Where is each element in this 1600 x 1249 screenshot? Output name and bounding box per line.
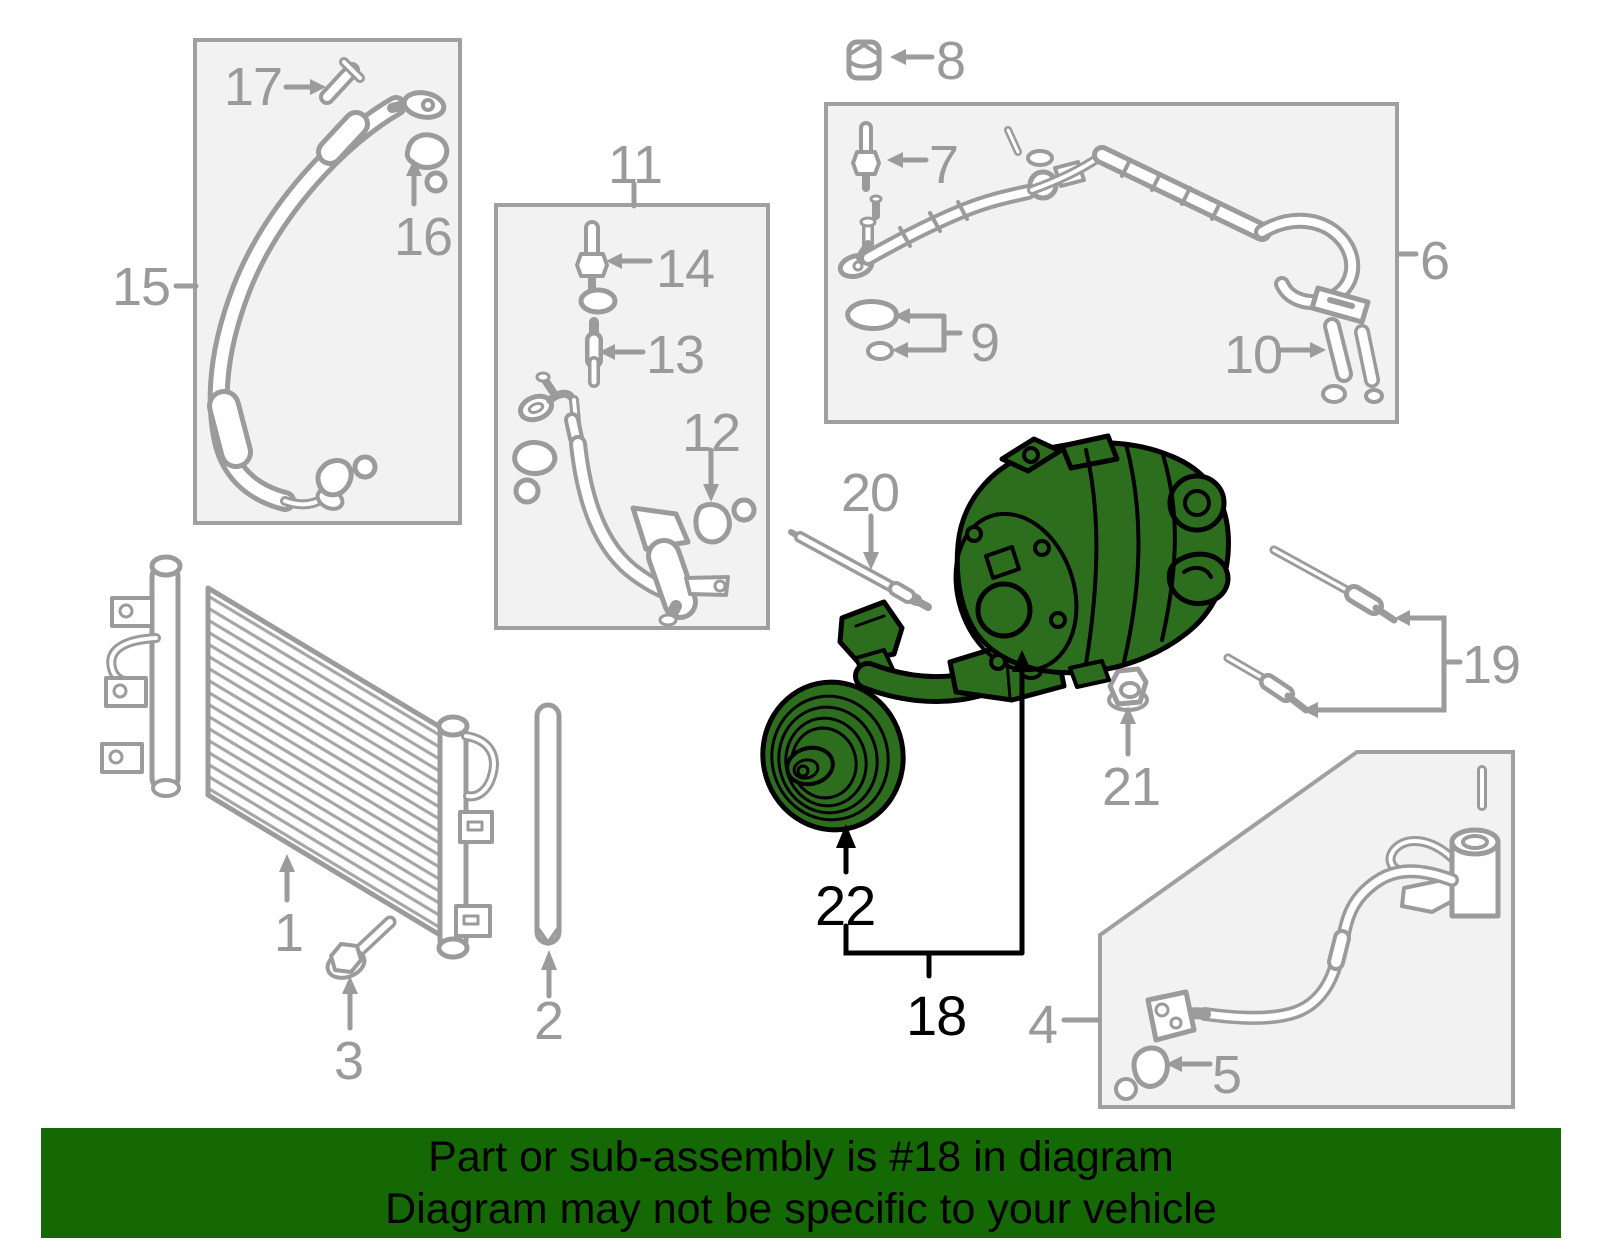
- parts-diagram: 17 16 15 11 14 13 12 8 7 9 6 10 20 19 21…: [0, 0, 1600, 1249]
- diagram-artwork: [0, 0, 1600, 1249]
- studs-19-drawing: [1228, 550, 1394, 710]
- part-label-16: 16: [394, 210, 452, 264]
- drier-cartridge-2-drawing: [537, 705, 559, 943]
- part-label-5: 5: [1212, 1048, 1241, 1102]
- part-label-19: 19: [1462, 638, 1520, 692]
- part-label-8: 8: [936, 34, 965, 88]
- o-ring-drawing: [581, 290, 615, 312]
- part-label-15: 15: [112, 260, 170, 314]
- part-label-22-highlighted: 22: [815, 878, 875, 934]
- highlight-banner: Part or sub-assembly is #18 in diagram D…: [41, 1128, 1561, 1238]
- banner-line-1: Part or sub-assembly is #18 in diagram: [428, 1131, 1174, 1183]
- part-label-1: 1: [274, 906, 303, 960]
- part-label-4: 4: [1028, 998, 1057, 1052]
- part-label-6: 6: [1420, 234, 1449, 288]
- cap-8-drawing: [849, 42, 879, 78]
- part-label-9: 9: [970, 316, 999, 370]
- part-label-14: 14: [656, 242, 714, 296]
- part-label-17: 17: [224, 60, 282, 114]
- part-label-18-highlighted: 18: [906, 988, 966, 1044]
- stud-20-drawing: [791, 532, 928, 607]
- part-label-7: 7: [929, 138, 958, 192]
- bolt-3-drawing: [324, 922, 390, 983]
- part-label-12: 12: [682, 406, 740, 460]
- bracket-19: [1318, 618, 1460, 710]
- part-label-13: 13: [646, 328, 704, 382]
- nut-21-drawing: [1109, 669, 1147, 710]
- part-label-11: 11: [608, 138, 662, 192]
- condenser-1-drawing: [102, 557, 494, 957]
- part-label-2: 2: [534, 994, 563, 1048]
- compressor-18-drawing: [936, 436, 1228, 687]
- part-label-21: 21: [1102, 760, 1160, 814]
- part-label-20: 20: [841, 466, 899, 520]
- banner-line-2: Diagram may not be specific to your vehi…: [385, 1183, 1217, 1235]
- part-label-3: 3: [334, 1034, 363, 1088]
- part-label-10: 10: [1224, 328, 1282, 382]
